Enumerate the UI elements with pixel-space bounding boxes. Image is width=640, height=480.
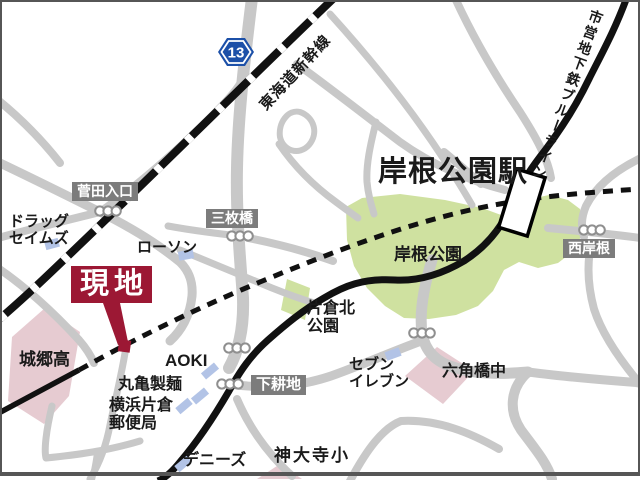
- label-shirosato-high: 城郷高: [19, 351, 70, 370]
- label-dennys: デニーズ: [183, 452, 246, 470]
- label-kishine-koen-station: 岸根公園駅: [378, 157, 528, 189]
- label-katakura-kita-park: 片倉北 公園: [307, 300, 355, 335]
- label-yokohama-katakura-post: 横浜片倉 郵便局: [109, 397, 173, 432]
- label-kishine-park: 岸根公園: [394, 246, 462, 265]
- label-kandaiji-elem: 神大寺小: [274, 447, 350, 466]
- label-rokkakubashi-jhs: 六角橋中: [442, 363, 506, 381]
- map-border-bottom: [0, 472, 640, 476]
- map-labels-layer: 菅田入口三枚橋下耕地西岸根ドラッグ セイムズローソン城郷高AOKI丸亀製麺横浜片…: [0, 0, 640, 480]
- label-sanmaibashi: 三枚橋: [206, 209, 258, 228]
- label-seven-eleven: セブン イレブン: [349, 357, 409, 390]
- label-shimokouchi: 下耕地: [251, 375, 306, 395]
- label-drug-seims: ドラッグ セイムズ: [9, 214, 69, 247]
- location-map: 13 菅田入口三枚橋下耕地西岸根ドラッグ セイムズローソン城郷高AOKI丸亀製麺…: [0, 0, 640, 480]
- map-border-top: [0, 0, 640, 2]
- label-lawson: ローソン: [137, 240, 197, 257]
- label-nishikishine: 西岸根: [563, 239, 615, 258]
- label-subway-blue-line: 市営地下鉄ブルーライン: [528, 7, 605, 183]
- label-tokaido-shinkansen: 東海道新幹線: [252, 27, 339, 119]
- label-sugeta-iriguchi: 菅田入口: [72, 182, 138, 201]
- label-site: 現地: [71, 266, 152, 303]
- label-aoki: AOKI: [165, 352, 208, 371]
- label-marugame-seimen: 丸亀製麺: [118, 376, 182, 394]
- map-border-left: [0, 0, 2, 476]
